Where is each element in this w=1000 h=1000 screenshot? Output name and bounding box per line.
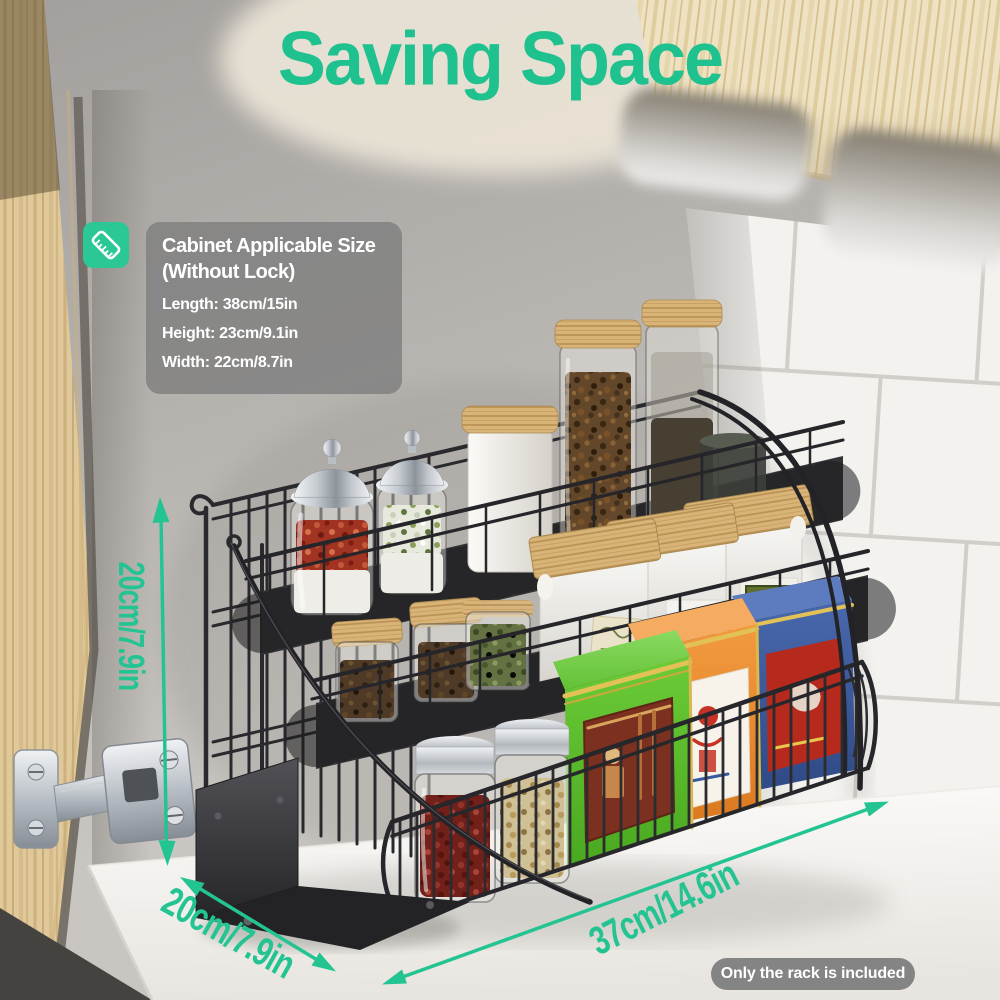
headline-title: Saving Space [180, 16, 820, 103]
panel-heading-line2: (Without Lock) [162, 260, 386, 286]
panel-heading-line1: Cabinet Applicable Size [162, 234, 386, 260]
footnote-badge: Only the rack is included [711, 958, 915, 990]
dimension-arrows [0, 0, 1000, 1000]
spec-height: Height: 23cm/9.1in [162, 325, 386, 343]
ruler-icon [83, 222, 129, 268]
product-image: Saving Space Cabinet Applicable Size (Wi… [0, 0, 1000, 1000]
spec-length: Length: 38cm/15in [162, 296, 386, 314]
spec-width: Width: 22cm/8.7in [162, 354, 386, 372]
height-dimension-label: 20cm/7.9in [110, 562, 152, 673]
cabinet-size-panel: Cabinet Applicable Size (Without Lock) L… [146, 222, 402, 394]
